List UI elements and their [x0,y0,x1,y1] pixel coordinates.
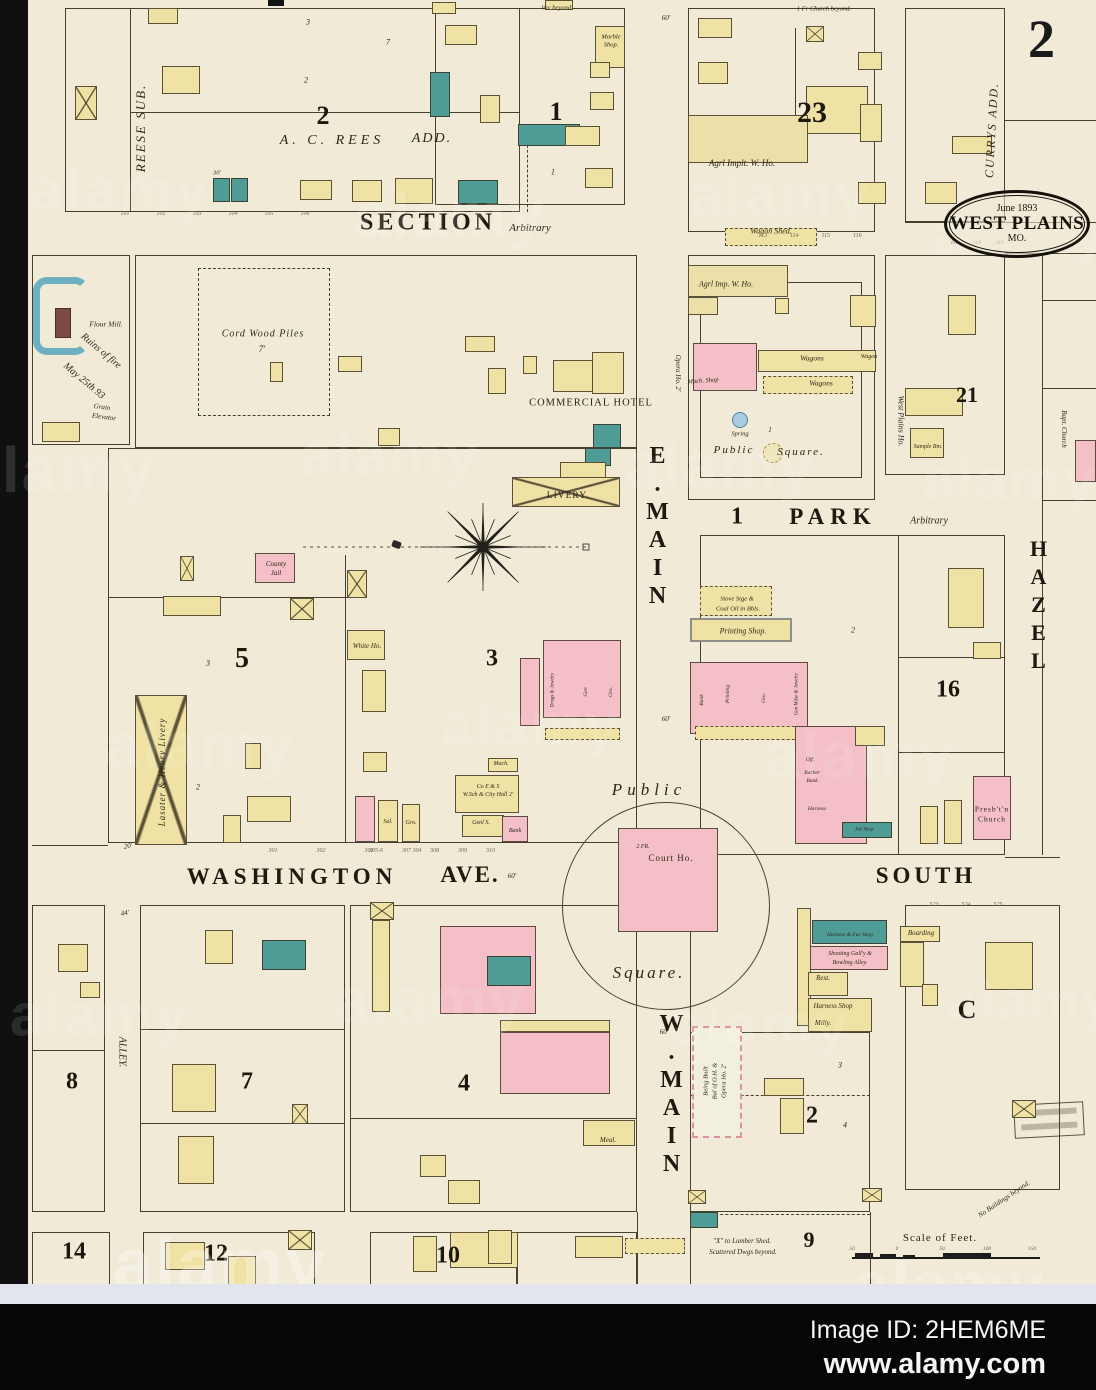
map-label: COMMERCIAL HOTEL [529,398,653,409]
building [292,1104,308,1124]
map-label: Scattered Dwgs beyond. [709,1248,777,1256]
scale-of-feet-label: Scale of Feet. [903,1232,977,1244]
map-label: Square. [777,446,825,458]
map-label: AVE. [440,862,499,888]
building [900,942,924,987]
map-line [1005,857,1060,858]
map-label: Spring [731,431,748,438]
map-label: HAZEL [1025,536,1051,676]
block-number: 23 [797,96,827,130]
map-label: PARK [789,504,876,530]
building [172,1064,216,1112]
building [592,352,624,394]
map-label: Bal of O.H. & [712,1063,719,1100]
scale-bar-segment [943,1253,991,1259]
building [488,368,506,394]
map-label: W.MAIN [658,1011,685,1179]
x-mark [293,1105,307,1123]
map-label: 2 FR. [636,844,649,850]
block-number: C [958,995,977,1025]
building [42,422,80,442]
building [855,726,885,746]
block-number: 5 [235,643,249,675]
map-label: Bank [806,778,817,784]
building [213,178,230,202]
map-label: Meal. [600,1136,616,1144]
map-label: 523 524 525 [930,902,1003,908]
map-label: Gro. [761,693,767,703]
map-label: White Ho. [353,642,381,650]
map-label: Opera Ho. 2' [721,1064,728,1098]
building [553,360,597,392]
building [80,982,100,998]
map-label: 30' [213,170,221,177]
building [618,828,718,932]
map-label: Arbitrary [910,516,948,527]
building [905,388,963,416]
block-number: 2 [317,101,330,131]
building [462,815,504,837]
image-id-text: Image ID: 2HEM6ME [810,1316,1046,1345]
map-label: Opera Ho. 2' [674,355,682,392]
map-label: Harness Shop [813,1002,852,1010]
building [973,642,1001,659]
map-label: Harness [808,806,826,812]
map-label: Public [612,780,686,800]
x-mark [291,599,313,619]
map-label: 60' [508,872,517,880]
building [948,295,976,335]
building [985,942,1033,990]
building [810,946,888,970]
building [430,72,450,117]
x-mark [289,1231,311,1249]
block-number: 2 [806,1103,818,1130]
x-mark [76,87,96,119]
map-line [1042,300,1096,301]
x-mark [1013,1101,1035,1117]
map-label: Gen [583,687,589,696]
building [432,2,456,14]
building [565,126,600,146]
map-label: ADD. [412,131,452,147]
building [180,556,194,581]
map-label: Wagons [800,354,823,363]
building [545,728,620,740]
map-line [130,8,131,212]
building [764,1078,804,1096]
map-label: Being Built [703,1066,710,1095]
title-oval: June 1893 West Plains Mo. [944,190,1090,258]
scale-bar-segment [880,1254,896,1259]
building [270,362,283,382]
map-label: Drugs & Jewelry [551,673,556,707]
map-label: 60' [662,14,671,22]
scale-tick: 50 [939,1246,945,1252]
building [370,902,394,920]
map-label: Gen Mdse & Jewelry [795,673,800,715]
map-label: 1 Fr Church beyond. [797,6,851,13]
alamy-url-text: www.alamy.com [824,1348,1046,1381]
map-label: Stove Stge & [720,596,754,603]
building [523,356,537,374]
map-label: ALLEY. [117,1037,128,1067]
map-label: SECTION [360,210,496,237]
scanned-map-page: Scale of Feet. SECTIONArbitraryPARKArbit… [0,0,1096,1390]
map-line [345,555,346,843]
block-number: 8 [66,1069,78,1096]
building [850,295,876,327]
map-label: Sal. [383,819,392,825]
map-label: Lasater & Henry Livery [157,718,167,827]
map-label: Presb't'n [975,805,1009,814]
building [690,1212,718,1228]
map-label: Square. [613,963,686,983]
building [458,180,498,204]
map-label: Bank [699,694,705,705]
x-mark [807,27,823,41]
block-number: 12 [204,1241,228,1268]
map-label: Genl S. [472,820,490,826]
building [560,462,606,478]
building [378,428,400,446]
scale-tick: 150 [1028,1246,1036,1252]
scan-edge-strip [0,1284,1096,1304]
map-label: Printing [725,685,731,703]
x-mark [689,1191,705,1203]
map-label: Sample Rm. [914,444,943,450]
building [858,52,882,70]
map-label: 60' [662,715,671,723]
scale-tick: 100 [983,1246,991,1252]
map-label: Harness & Fur Shop [827,932,873,938]
map-line [1042,388,1096,389]
building [910,428,944,458]
block-number: 16 [936,677,960,704]
map-label: "X" to Lumber Shed. [713,1237,771,1245]
building [688,297,718,315]
map-line [32,845,108,846]
building [575,1236,623,1258]
building [205,930,233,964]
map-line [140,1123,345,1124]
map-label: Vac beyond. [541,5,572,12]
building [690,662,808,734]
building [178,1136,214,1184]
building [698,62,728,84]
building [590,92,614,110]
map-label: 305-6 307 308 309 310 [369,848,495,854]
building [288,1230,312,1250]
map-label: 3 [306,18,310,27]
building [163,596,221,616]
building [300,180,332,200]
building [487,956,531,986]
map-label: 44' [120,908,130,917]
building [413,1236,437,1272]
x-mark [863,1189,881,1201]
sheet-number: 2 [1028,8,1055,70]
map-label: Shop. [604,42,619,49]
map-label: 1 [768,426,772,434]
map-label: Printing Shop. [720,627,767,636]
map-label: E.MAIN [644,443,671,611]
map-label: 113 114 115 116 [758,233,861,239]
map-label: Arbitrary [509,222,551,234]
map-label: 7' [259,344,265,354]
block-number: 1 [550,97,563,127]
map-label: Wagon [861,354,877,360]
map-label: Church [978,815,1006,824]
building [500,1020,610,1032]
building [780,1098,804,1134]
scale-tick: 50 [849,1246,855,1252]
map-line [140,905,345,1212]
map-line [1005,120,1096,121]
map-line [1042,500,1096,501]
map-label: Court Ho. [649,853,694,863]
block-number: 21 [956,382,978,408]
building [480,95,500,123]
x-mark [348,571,366,597]
building [465,336,495,352]
building [860,104,882,142]
map-label: Agrl Imp. W. Ho. [699,280,753,289]
map-label: Co E & S [477,784,500,790]
building [593,424,621,448]
map-label: Cord Wood Piles [222,329,305,340]
building [58,944,88,972]
building [944,800,962,844]
building [352,180,382,202]
building [347,570,367,598]
building [625,1238,685,1254]
building [695,726,805,740]
map-label: Milly. [815,1019,831,1027]
building [688,115,808,163]
building [520,658,540,726]
building [925,182,957,204]
block-number: 14 [62,1239,86,1266]
map-line [870,1212,871,1284]
map-label: Flour Mill. [89,320,122,329]
map-label: Bowling Alley. [833,960,868,966]
map-line [32,1050,105,1051]
map-label: Marble [601,34,620,41]
block-number: 1 [731,504,743,531]
map-label: Bapt. Church [1060,410,1068,447]
map-label: Coal Oil in Bbls. [716,606,760,613]
building [255,553,295,583]
scan-artifact [268,0,284,6]
building [698,18,732,38]
building [448,1180,480,1204]
map-label: 20' [123,841,133,850]
map-label: LIVERY. [547,491,589,501]
block-number: 7 [241,1069,253,1096]
building [858,182,886,204]
map-label: West Plains Ho. [897,395,906,446]
map-label: 2 [304,76,308,85]
building [775,298,789,314]
scale-bar-segment [903,1255,915,1259]
building [355,796,375,842]
building [688,1190,706,1204]
building [1012,1100,1036,1118]
building [162,66,200,94]
map-label: 3 [206,659,210,668]
building [862,1188,882,1202]
building [75,86,97,120]
map-label: W.Sch & City Hall 2' [463,792,513,798]
map-label: Mach. [493,761,508,767]
oval-inner-ring [949,195,1085,253]
map-line [350,1118,637,1119]
block-number: 9 [804,1227,815,1253]
map-label: 3 [838,1061,842,1070]
map-line [140,1029,345,1030]
map-label: 2 [196,783,200,792]
map-label: County [266,560,286,568]
x-mark [371,903,393,919]
map-label: Agrl Implt. W. Ho. [709,158,775,168]
building [262,940,306,970]
building [363,752,387,772]
building [1075,440,1096,482]
map-canvas: Scale of Feet. SECTIONArbitraryPARKArbit… [0,0,1096,1284]
map-label: Jail [271,569,282,577]
map-label: Job Shop [855,828,873,833]
building [245,743,261,769]
building [165,1242,205,1270]
map-label: SOUTH [876,863,977,889]
map-label: Wagons [809,379,832,388]
block-number: 3 [486,646,498,673]
map-label: REESE SUB. [133,84,149,173]
building [148,8,178,24]
building [395,178,433,204]
building [922,984,938,1006]
map-label: 7 [386,38,390,47]
map-label: Bank [509,828,521,834]
map-label: Rest. [816,974,830,982]
map-line [700,1214,870,1215]
map-label: Gro. [406,820,417,826]
block-number: 10 [436,1243,460,1270]
map-line [898,535,899,855]
building [231,178,248,202]
building [488,1230,512,1264]
block-number: 4 [458,1071,470,1098]
map-label: Gro. [608,687,614,697]
building [290,598,314,620]
map-label: Public [714,444,755,456]
map-label: 1 [551,168,555,177]
building [763,376,853,394]
building [590,62,610,78]
map-label: Boarding [908,929,934,937]
building [445,25,477,45]
map-label: A. C. REES [280,133,385,149]
map-label: Off. [806,757,814,763]
building [338,356,362,372]
map-label: Shooting Gall'y & [828,951,872,957]
map-line [198,268,330,416]
building [372,920,390,1012]
building [920,806,938,844]
map-label: Barber [804,770,820,776]
map-line [905,905,1060,1190]
building [500,1032,610,1094]
scale-tick: 0 [896,1246,899,1252]
map-label: 2 [851,626,855,635]
map-label: 60' [660,1028,669,1036]
building [585,168,613,188]
building [247,796,291,822]
map-label: 4 [843,1121,847,1130]
map-label: WASHINGTON [187,864,398,890]
building [228,1256,256,1284]
map-line [898,752,1005,753]
x-mark [181,557,193,580]
building [223,815,241,843]
building [948,568,984,628]
building [806,26,824,42]
map-label: 101 102 103 104 105 106 [121,211,310,217]
watermark-band: Image ID: 2HEM6ME www.alamy.com [0,1304,1096,1390]
building [362,670,386,712]
building [420,1155,446,1177]
building [55,308,71,338]
